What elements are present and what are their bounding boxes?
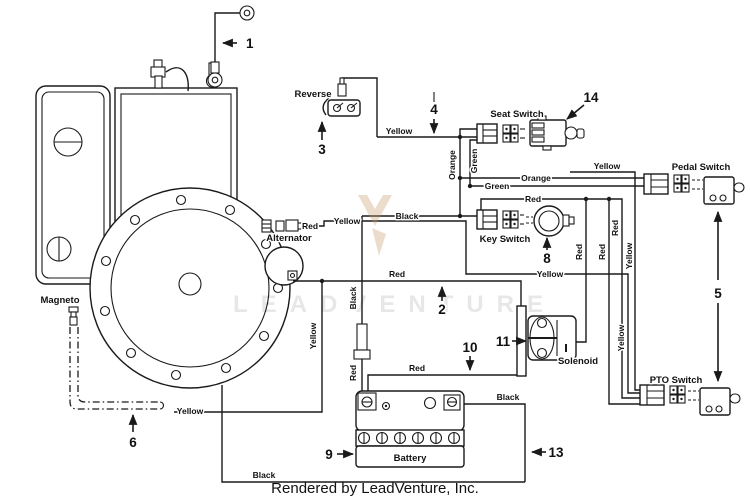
alternator-label: Alternator bbox=[266, 233, 312, 244]
wire-label-yellow: Yellow bbox=[386, 126, 413, 136]
watermark-flame-logo bbox=[358, 195, 392, 256]
seat-switch bbox=[477, 116, 584, 150]
wire-label-yellow: Yellow bbox=[594, 161, 621, 171]
pto-switch-plug bbox=[670, 386, 685, 403]
seat-switch-plug bbox=[503, 125, 525, 142]
spark-plug bbox=[151, 60, 188, 91]
wire-label-black: Black bbox=[253, 470, 276, 480]
alternator-connector bbox=[262, 220, 303, 232]
wire-label-yellow: Yellow bbox=[616, 324, 626, 351]
solenoid-label: Solenoid bbox=[558, 356, 598, 367]
watermark-text: LEADVENTURE bbox=[233, 291, 556, 318]
pedal-switch-body bbox=[704, 177, 734, 204]
callout-6: 6 bbox=[129, 435, 137, 450]
callout-11: 11 bbox=[496, 334, 511, 349]
key-switch bbox=[477, 206, 574, 236]
pto-switch-label: PTO Switch bbox=[650, 375, 703, 386]
wire-label-red: Red bbox=[525, 194, 541, 204]
wire-label-black: Black bbox=[497, 392, 520, 402]
wire-label-orange: Orange bbox=[447, 150, 457, 180]
wire-label-red: Red bbox=[574, 244, 584, 260]
wire-red-solenoid bbox=[576, 199, 586, 342]
flywheel bbox=[90, 188, 290, 388]
callout-3: 3 bbox=[318, 142, 326, 157]
engine-terminal bbox=[288, 271, 297, 280]
callout-8: 8 bbox=[543, 251, 551, 266]
callout-5: 5 bbox=[714, 286, 722, 301]
callout-1: 1 bbox=[246, 36, 254, 51]
wire-label-yellow: Yellow bbox=[624, 242, 634, 269]
wire-label-red: Red bbox=[348, 365, 358, 381]
wire-label-yellow: Yellow bbox=[537, 269, 564, 279]
wire-label-red: Red bbox=[597, 244, 607, 260]
battery-cell-band bbox=[356, 430, 464, 446]
callout-4: 4 bbox=[430, 102, 438, 117]
key-switch-plug bbox=[503, 211, 524, 228]
wire-label-red: Red bbox=[409, 363, 425, 373]
wire-label-yellow: Yellow bbox=[177, 406, 204, 416]
battery-label: Battery bbox=[394, 453, 427, 464]
pedal-switch-plug bbox=[674, 175, 689, 192]
pedal-switch-label: Pedal Switch bbox=[672, 162, 731, 173]
wire-label-green: Green bbox=[485, 181, 510, 191]
callout-9: 9 bbox=[325, 447, 333, 462]
wire-label-green: Green bbox=[469, 149, 479, 174]
callout-10: 10 bbox=[462, 340, 477, 355]
pedal-switch bbox=[644, 174, 744, 204]
wire-label-yellow: Yellow bbox=[308, 322, 318, 349]
inline-fuse bbox=[354, 324, 370, 359]
footer-credit: Rendered by LeadVenture, Inc. bbox=[271, 480, 479, 497]
callout-14: 14 bbox=[583, 90, 599, 105]
wire-label-red: Red bbox=[302, 221, 318, 231]
wire-label-orange: Orange bbox=[521, 173, 551, 183]
callout-2: 2 bbox=[438, 302, 446, 317]
pto-switch-body bbox=[700, 388, 730, 415]
wire-label-black: Black bbox=[396, 211, 419, 221]
pedal-switch-plunger bbox=[734, 183, 744, 192]
pto-switch bbox=[640, 385, 740, 415]
wire-label-red: Red bbox=[610, 220, 620, 236]
wire-black-negative bbox=[463, 404, 525, 482]
pto-switch-plunger bbox=[730, 394, 740, 403]
reverse-label: Reverse bbox=[295, 89, 332, 100]
wire-label-black: Black bbox=[348, 286, 358, 309]
callout-13: 13 bbox=[548, 445, 564, 460]
key-switch-label: Key Switch bbox=[480, 234, 531, 245]
wire-label-red: Red bbox=[389, 269, 405, 279]
seat-switch-plunger bbox=[565, 127, 577, 139]
magneto-label: Magneto bbox=[40, 295, 79, 306]
wiring-diagram: LEADVENTURE Yellow Orange Green Yellow O… bbox=[0, 0, 750, 501]
seat-switch-label: Seat Switch bbox=[490, 109, 544, 120]
wire-label-yellow: Yellow bbox=[334, 216, 361, 226]
